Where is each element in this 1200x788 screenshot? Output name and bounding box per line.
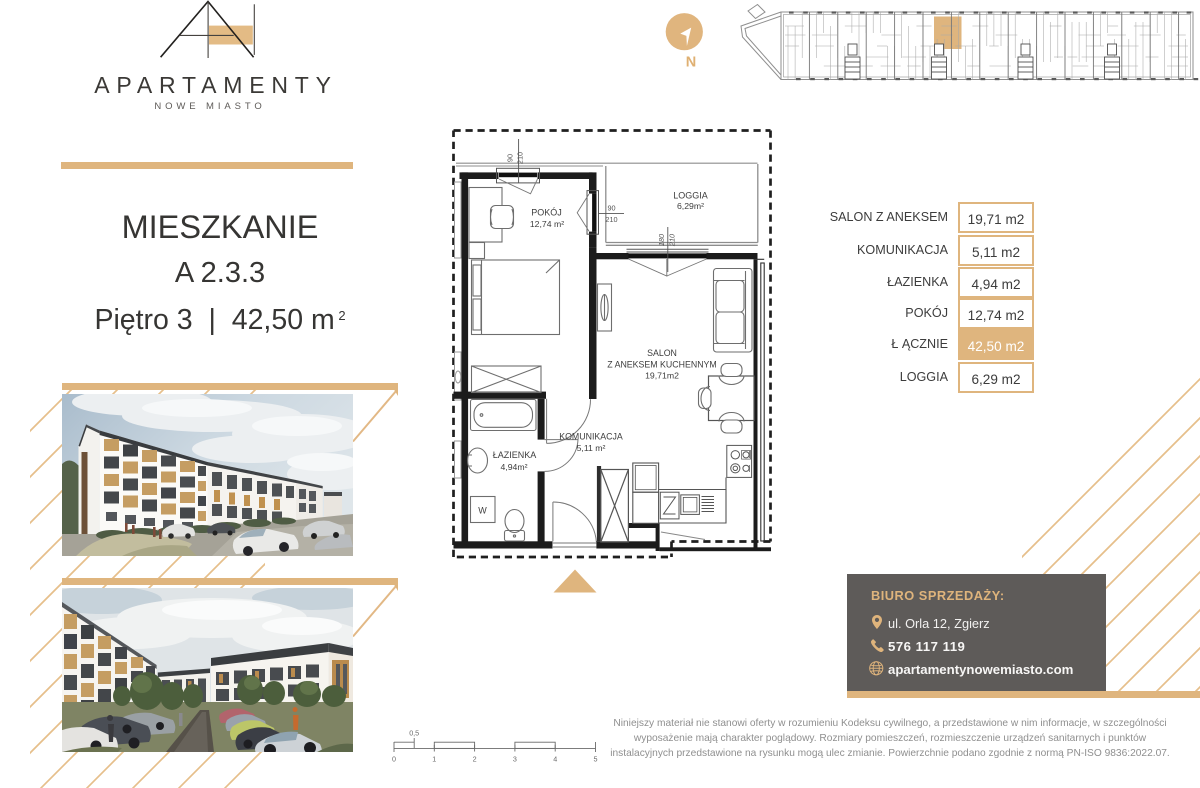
svg-text:3: 3 — [513, 755, 517, 764]
svg-text:210: 210 — [668, 234, 677, 247]
svg-text:2: 2 — [473, 755, 477, 764]
svg-text:210: 210 — [516, 152, 525, 164]
svg-text:19,71m2: 19,71m2 — [645, 371, 679, 381]
svg-text:ŁAZIENKA: ŁAZIENKA — [493, 450, 537, 460]
svg-text:180: 180 — [657, 234, 666, 246]
svg-text:0,5: 0,5 — [409, 729, 419, 738]
svg-text:POKÓJ: POKÓJ — [531, 208, 562, 218]
svg-text:KOMUNIKACJA: KOMUNIKACJA — [559, 432, 623, 442]
svg-text:4,94m²: 4,94m² — [500, 462, 527, 472]
svg-text:5,11 m²: 5,11 m² — [577, 443, 606, 453]
svg-text:SALON: SALON — [647, 348, 677, 358]
svg-text:N: N — [686, 54, 696, 70]
svg-text:0: 0 — [392, 755, 396, 764]
svg-text:LOGGIA: LOGGIA — [673, 191, 708, 201]
svg-text:1: 1 — [432, 755, 436, 764]
svg-text:210: 210 — [605, 215, 617, 224]
svg-text:90: 90 — [506, 154, 515, 162]
svg-text:5: 5 — [594, 755, 598, 764]
svg-text:4: 4 — [553, 755, 557, 764]
svg-text:90: 90 — [607, 204, 615, 213]
svg-text:W: W — [478, 506, 487, 516]
svg-text:12,74 m²: 12,74 m² — [530, 219, 564, 229]
